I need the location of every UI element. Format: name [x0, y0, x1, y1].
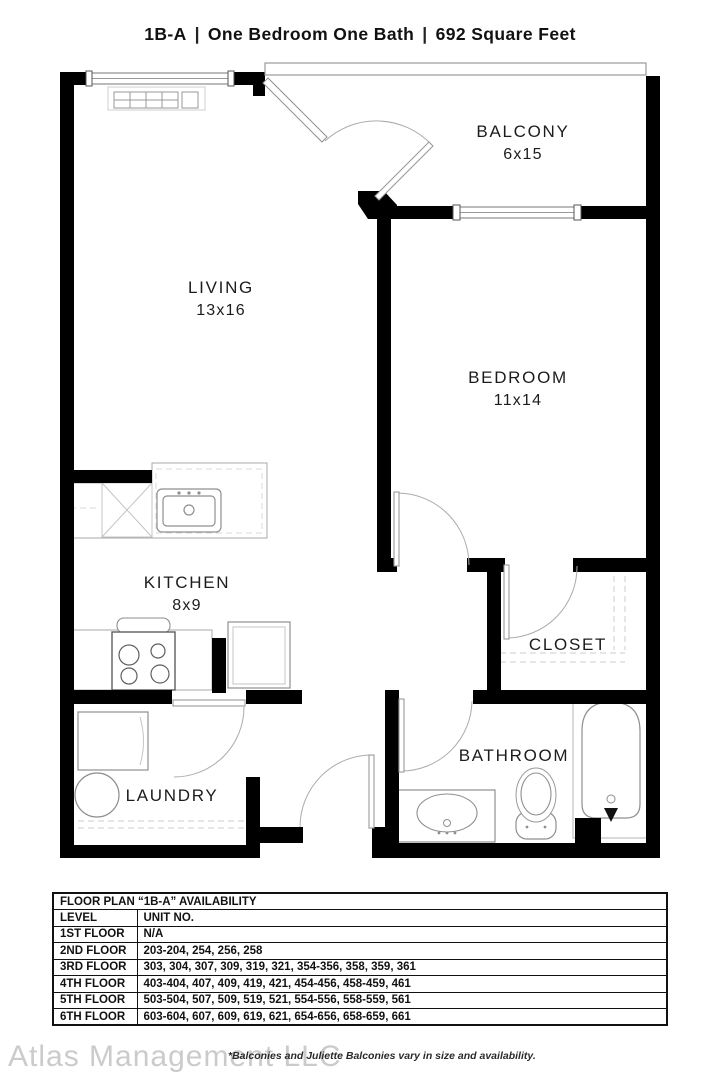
baseboard-heater [108, 87, 205, 110]
units-cell: 203-204, 254, 256, 258 [137, 943, 667, 960]
level-cell: 4TH FLOOR [53, 976, 137, 993]
header-level: LEVEL [53, 910, 137, 927]
table-title-row: FLOOR PLAN “1B-A” AVAILABILITY [53, 893, 667, 910]
units-cell: 503-504, 507, 509, 519, 521, 554-556, 55… [137, 992, 667, 1009]
room-label-closet: CLOSET [529, 633, 607, 657]
bedroom-door [394, 492, 469, 566]
table-row: 1ST FLOOR N/A [53, 926, 667, 943]
water-heater [75, 773, 119, 817]
units-cell: 303, 304, 307, 309, 319, 321, 354-356, 3… [137, 959, 667, 976]
room-dims: 6x15 [476, 144, 569, 166]
table-row: 2ND FLOOR 203-204, 254, 256, 258 [53, 943, 667, 960]
laundry-threshold [68, 821, 244, 828]
header-unit-no: UNIT NO. [137, 910, 667, 927]
balcony-door [325, 121, 433, 200]
toilet [516, 768, 556, 839]
room-label-living: LIVING 13x16 [188, 276, 254, 322]
level-cell: 3RD FLOOR [53, 959, 137, 976]
room-name: LAUNDRY [126, 784, 219, 808]
table-row: 3RD FLOOR 303, 304, 307, 309, 319, 321, … [53, 959, 667, 976]
level-cell: 1ST FLOOR [53, 926, 137, 943]
level-cell: 6TH FLOOR [53, 1009, 137, 1026]
units-cell: 603-604, 607, 609, 619, 621, 654-656, 65… [137, 1009, 667, 1026]
room-name: LIVING [188, 276, 254, 300]
laundry-door [173, 700, 245, 777]
floor-plan-flyer: { "header": { "unit_code": "1B-A", "divi… [0, 0, 720, 1080]
room-label-bathroom: BATHROOM [459, 744, 570, 768]
entry-door [300, 755, 374, 828]
refrigerator [228, 622, 290, 688]
room-label-laundry: LAUNDRY [126, 784, 219, 808]
walls [60, 72, 660, 858]
table-row: 5TH FLOOR 503-504, 507, 509, 519, 521, 5… [53, 992, 667, 1009]
room-name: CLOSET [529, 633, 607, 657]
units-cell: N/A [137, 926, 667, 943]
room-label-bedroom: BEDROOM 11x14 [468, 366, 568, 412]
units-cell: 403-404, 407, 409, 419, 421, 454-456, 45… [137, 976, 667, 993]
washer-dryer [78, 712, 148, 770]
level-cell: 2ND FLOOR [53, 943, 137, 960]
room-name: BEDROOM [468, 366, 568, 390]
table-row: 4TH FLOOR 403-404, 407, 409, 419, 421, 4… [53, 976, 667, 993]
bathtub [573, 695, 648, 838]
living-window [86, 71, 234, 86]
level-cell: 5TH FLOOR [53, 992, 137, 1009]
table-title: FLOOR PLAN “1B-A” AVAILABILITY [53, 893, 667, 910]
table-row: 6TH FLOOR 603-604, 607, 609, 619, 621, 6… [53, 1009, 667, 1026]
diagonal-wall [263, 78, 327, 142]
balcony-disclaimer-note: *Balconies and Juliette Balconies vary i… [228, 1050, 536, 1062]
availability-table: FLOOR PLAN “1B-A” AVAILABILITY LEVEL UNI… [52, 892, 668, 1026]
room-name: BATHROOM [459, 744, 570, 768]
balcony-railing [265, 63, 646, 75]
room-name: BALCONY [476, 120, 569, 144]
bathroom-vanity [393, 790, 495, 842]
room-dims: 13x16 [188, 300, 254, 322]
room-dims: 11x14 [468, 390, 568, 412]
room-dims: 8x9 [144, 595, 231, 617]
table-header-row: LEVEL UNIT NO. [53, 910, 667, 927]
bedroom-window [453, 205, 581, 220]
stove [112, 618, 175, 690]
room-label-balcony: BALCONY 6x15 [476, 120, 569, 166]
room-name: KITCHEN [144, 571, 231, 595]
closet-door [504, 565, 577, 639]
room-label-kitchen: KITCHEN 8x9 [144, 571, 231, 617]
